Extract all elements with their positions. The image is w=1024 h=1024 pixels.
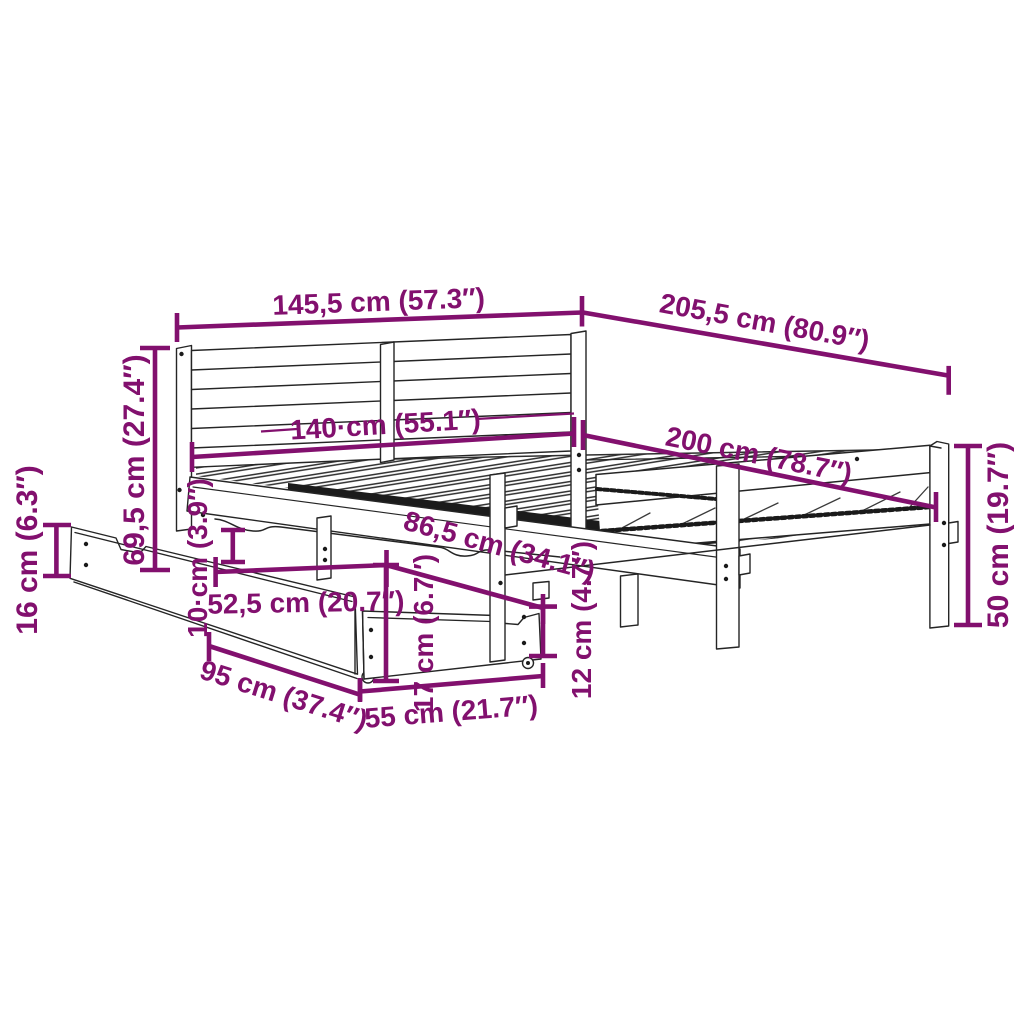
- svg-text:12 cm (4.7″): 12 cm (4.7″): [566, 541, 597, 699]
- svg-text:69,5 cm (27.4″): 69,5 cm (27.4″): [118, 354, 151, 565]
- svg-text:16 cm (6.3″): 16 cm (6.3″): [11, 465, 44, 634]
- svg-text:52,5 cm (20.7″): 52,5 cm (20.7″): [207, 585, 405, 619]
- svg-text:50 cm (19.7″): 50 cm (19.7″): [982, 442, 1015, 628]
- svg-text:17 cm (6.7″): 17 cm (6.7″): [408, 554, 439, 712]
